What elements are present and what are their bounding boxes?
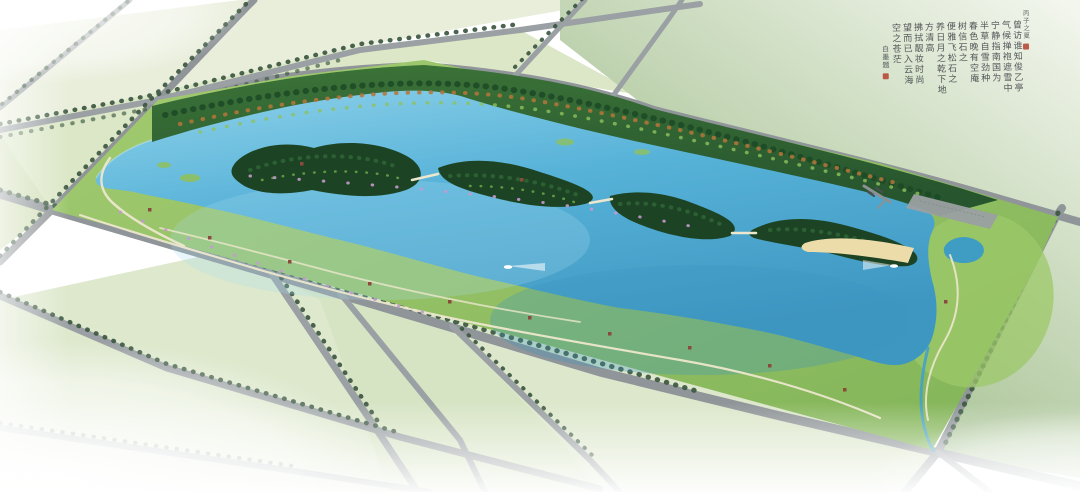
marsh-islet [157,162,171,168]
pavilion [688,346,692,350]
pavilion [208,236,212,240]
pavilion [148,208,152,212]
marsh-islet [634,149,650,155]
boat [890,264,898,268]
calligraphy-column: 方清高 [923,22,936,158]
pavilion [448,300,452,304]
calligraphy-column: 春色晚有空庵 [967,21,980,157]
calligraphy-column: 曾访谁知俊乙亭 [1011,20,1024,156]
calligraphy-column: 拂拭靓妆时尚 [912,22,925,158]
masterplan-rendering: 丙子之夏 曾访谁知俊乙亭 气候掸袍遮雪中 宁静指南国为 半草自雪劲种 春色晚有空… [0,0,1080,492]
pavilion [528,316,532,320]
calligraphy-column: 树信石之 [956,21,969,157]
calligraphy-inscription: 丙子之夏 曾访谁知俊乙亭 气候掸袍遮雪中 宁静指南国为 半草自雪劲种 春色晚有空… [836,10,1032,161]
calligraphy-column: 宁静指南国为 [989,20,1002,156]
marsh-islet [556,139,574,146]
island-west [231,143,420,196]
calligraphy-column: 便雅飞松石之 [945,21,958,157]
calligraphy-signature-text: 白墨题 [881,45,889,69]
calligraphy-column: 半草自雪劲种 [978,21,991,157]
seal-stamp [883,73,889,79]
pavilion [368,282,372,286]
lake-depth-shading [490,265,910,375]
pavilion [288,260,292,264]
pavilion [768,364,772,368]
calligraphy-column: 气候掸袍遮雪中 [1000,20,1013,156]
boat [504,265,512,269]
calligraphy-header-text: 丙子之夏 [1022,10,1029,40]
calligraphy-column: 望而已入云海 [901,23,914,159]
pavilion [300,162,304,166]
pavilion [608,332,612,336]
calligraphy-column: 空之苍茫 [890,23,903,159]
calligraphy-column: 养日月之乾下地 [934,22,947,158]
pavilion [944,300,948,304]
pavilion [843,388,847,392]
seal-stamp [1023,44,1029,50]
pavilion [520,178,524,182]
marsh-islet [180,174,200,182]
